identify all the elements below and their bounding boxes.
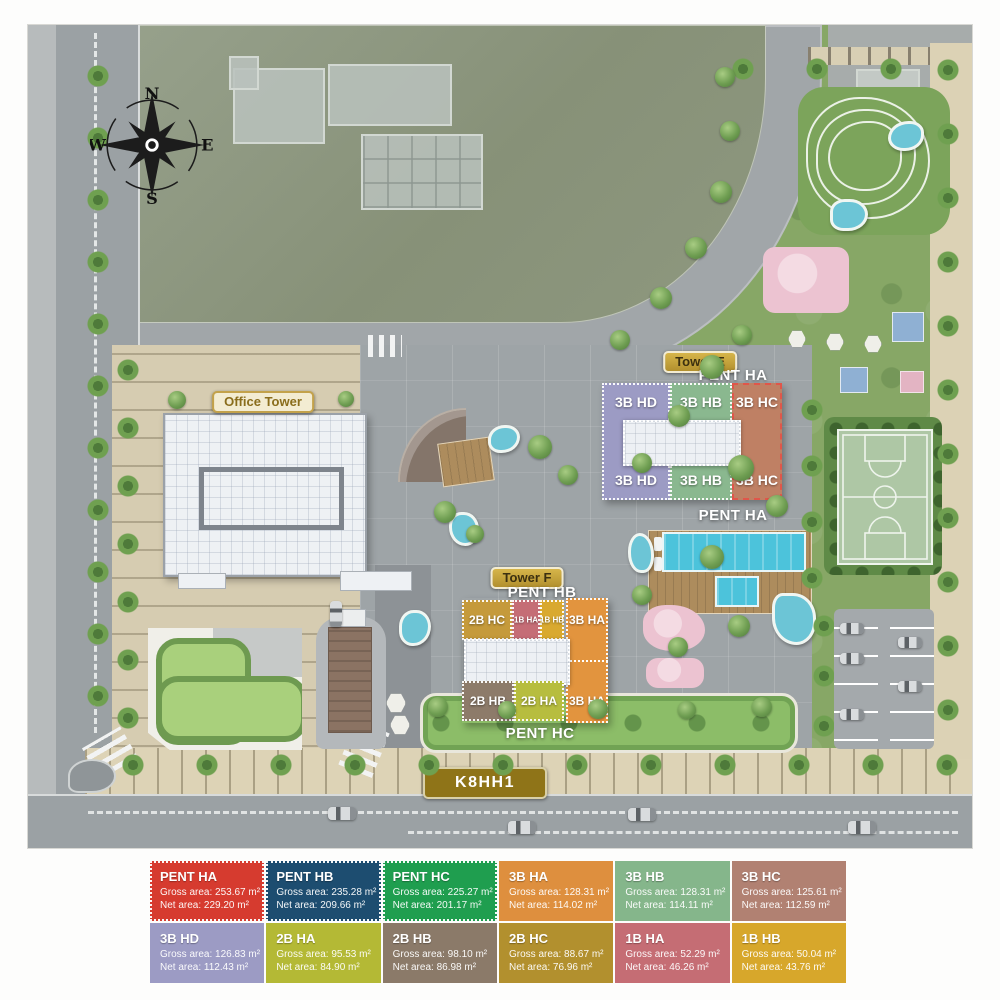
kids-pool xyxy=(715,576,759,607)
green-roof-podium xyxy=(148,628,302,750)
legend-item: 1B HB Gross area: 50.04 m² Net area: 43.… xyxy=(732,923,846,983)
tree-icon xyxy=(168,391,186,409)
legend-net: Net area: 112.43 m² xyxy=(160,961,254,974)
legend-name: 1B HB xyxy=(742,931,836,946)
unit-label: 3B HD xyxy=(615,394,657,410)
tree-row xyxy=(810,611,834,749)
tree-icon xyxy=(700,545,724,569)
unit-label: 2B HC xyxy=(469,613,505,627)
legend-net: Net area: 114.02 m² xyxy=(509,899,603,912)
compass-north: N xyxy=(145,84,160,103)
unit-label: 2B HA xyxy=(521,694,557,708)
tree-icon xyxy=(710,181,732,203)
sport-mat xyxy=(900,371,924,393)
tree-icon xyxy=(632,585,652,605)
office-tower-core xyxy=(199,467,344,530)
tree-icon xyxy=(685,237,707,259)
playground xyxy=(763,247,849,313)
tower-f-core xyxy=(464,639,570,685)
tree-icon xyxy=(338,391,354,407)
tree-icon xyxy=(558,465,578,485)
legend-item: 3B HD Gross area: 126.83 m² Net area: 11… xyxy=(150,923,264,983)
tree-row xyxy=(728,55,928,83)
basketball-court xyxy=(837,429,933,565)
legend-net: Net area: 84.90 m² xyxy=(276,961,370,974)
tree-row xyxy=(798,395,824,595)
car-icon xyxy=(508,821,536,834)
legend-gross: Gross area: 95.53 m² xyxy=(276,948,370,961)
unit-divider xyxy=(566,660,608,662)
tree-icon xyxy=(732,325,752,345)
legend-gross: Gross area: 126.83 m² xyxy=(160,948,254,961)
court-markings xyxy=(839,431,931,563)
tree-icon xyxy=(715,67,735,87)
legend-net: Net area: 229.20 m² xyxy=(160,899,254,912)
tree-icon xyxy=(588,699,608,719)
swimming-pool xyxy=(662,532,806,572)
compass-west: W xyxy=(90,136,107,155)
tree-icon xyxy=(528,435,552,459)
legend-name: 3B HD xyxy=(160,931,254,946)
unit-label: 3B HD xyxy=(615,472,657,488)
legend-net: Net area: 209.66 m² xyxy=(276,899,370,912)
tree-icon xyxy=(428,697,448,717)
tree-icon xyxy=(650,287,672,309)
legend-item: 2B HA Gross area: 95.53 m² Net area: 84.… xyxy=(266,923,380,983)
legend-gross: Gross area: 125.61 m² xyxy=(742,886,836,899)
legend-gross: Gross area: 52.29 m² xyxy=(625,948,719,961)
car-icon xyxy=(840,623,864,634)
legend-gross: Gross area: 98.10 m² xyxy=(393,948,487,961)
court-hedge xyxy=(824,417,942,575)
legend-name: 3B HB xyxy=(625,869,719,884)
car-icon xyxy=(840,709,864,720)
tree-row xyxy=(118,751,958,781)
game-court xyxy=(646,658,704,688)
pent-label: PENT HA xyxy=(699,507,768,524)
unit-label: 1B HA xyxy=(514,616,538,625)
roof-lawn xyxy=(156,676,307,742)
legend-net: Net area: 112.59 m² xyxy=(742,899,836,912)
tree-icon xyxy=(632,453,652,473)
dropoff-roof xyxy=(328,627,372,733)
entrance-canopy xyxy=(340,571,412,591)
legend-name: 2B HC xyxy=(509,931,603,946)
tree-icon xyxy=(610,330,630,350)
building-footprint xyxy=(328,64,452,126)
legend-gross: Gross area: 88.67 m² xyxy=(509,948,603,961)
sport-mat xyxy=(892,312,924,342)
wood-deck xyxy=(437,437,495,488)
tree-icon xyxy=(728,615,750,637)
building-footprint xyxy=(361,134,483,210)
parking-stalls xyxy=(834,617,878,741)
legend-gross: Gross area: 128.31 m² xyxy=(509,886,603,899)
left-sidewalk xyxy=(28,25,56,794)
tree-icon xyxy=(728,455,754,481)
building-footprint xyxy=(229,56,259,90)
compass-rose: N S W E xyxy=(90,83,214,207)
tree-row xyxy=(934,55,968,745)
legend: PENT HA Gross area: 253.67 m² Net area: … xyxy=(150,861,846,983)
tree-row xyxy=(114,355,144,741)
legend-name: 1B HA xyxy=(625,931,719,946)
legend-name: 2B HB xyxy=(393,931,487,946)
car-icon xyxy=(628,808,656,821)
car-icon xyxy=(898,637,922,648)
lounger xyxy=(654,537,662,551)
legend-item: 2B HC Gross area: 88.67 m² Net area: 76.… xyxy=(499,923,613,983)
parking-lot xyxy=(834,609,934,749)
legend-gross: Gross area: 50.04 m² xyxy=(742,948,836,961)
car-icon xyxy=(330,601,342,627)
legend-gross: Gross area: 253.67 m² xyxy=(160,886,254,899)
legend-name: 3B HC xyxy=(742,869,836,884)
crosswalk xyxy=(368,335,402,357)
legend-name: PENT HB xyxy=(276,869,370,884)
legend-name: PENT HA xyxy=(160,869,254,884)
legend-name: PENT HC xyxy=(393,869,487,884)
compass-east: E xyxy=(201,136,213,155)
legend-net: Net area: 86.98 m² xyxy=(393,961,487,974)
tree-icon xyxy=(752,697,772,717)
tree-icon xyxy=(434,501,456,523)
terraced-garden xyxy=(798,87,950,235)
tree-icon xyxy=(766,495,788,517)
legend-item: 3B HA Gross area: 128.31 m² Net area: 11… xyxy=(499,861,613,921)
tree-icon xyxy=(668,637,688,657)
legend-gross: Gross area: 128.31 m² xyxy=(625,886,719,899)
legend-item: PENT HA Gross area: 253.67 m² Net area: … xyxy=(150,861,264,921)
tree-icon xyxy=(678,701,696,719)
car-icon xyxy=(328,807,356,820)
sport-mat xyxy=(840,367,868,393)
pond xyxy=(628,533,654,573)
unit-label: 1B HB xyxy=(540,616,564,625)
car-icon xyxy=(898,681,922,692)
traffic-island xyxy=(68,759,116,793)
tower-f-building: 2B HC 1B HA 1B HB 3B HA 3B HA 2B HB 2B H… xyxy=(462,598,608,723)
site-plan-map: Office Tower Tower E PENT HA 3B HD 3B HB… xyxy=(28,25,972,848)
office-tower-building xyxy=(163,413,367,577)
unit-label: 3B HC xyxy=(736,394,778,410)
parking-stalls xyxy=(890,617,934,741)
legend-net: Net area: 46.26 m² xyxy=(625,961,719,974)
tree-icon xyxy=(498,701,516,719)
tree-icon xyxy=(466,525,484,543)
legend-name: 2B HA xyxy=(276,931,370,946)
tree-icon xyxy=(668,405,690,427)
pond xyxy=(830,199,868,231)
compass-south: S xyxy=(146,189,158,207)
unit-label: 3B HB xyxy=(680,472,722,488)
legend-item: 3B HB Gross area: 128.31 m² Net area: 11… xyxy=(615,861,729,921)
pent-label: PENT HC xyxy=(506,725,575,742)
legend-net: Net area: 201.17 m² xyxy=(393,899,487,912)
legend-item: PENT HC Gross area: 225.27 m² Net area: … xyxy=(383,861,497,921)
entrance-canopy xyxy=(178,573,226,589)
legend-name: 3B HA xyxy=(509,869,603,884)
legend-item: 1B HA Gross area: 52.29 m² Net area: 46.… xyxy=(615,923,729,983)
legend-item: 3B HC Gross area: 125.61 m² Net area: 11… xyxy=(732,861,846,921)
legend-net: Net area: 114.11 m² xyxy=(625,899,719,912)
office-tower-badge: Office Tower xyxy=(212,391,314,413)
legend-item: PENT HB Gross area: 235.28 m² Net area: … xyxy=(266,861,380,921)
legend-gross: Gross area: 235.28 m² xyxy=(276,886,370,899)
lane-line xyxy=(88,811,958,814)
lounger xyxy=(654,557,662,571)
legend-net: Net area: 76.96 m² xyxy=(509,961,603,974)
tree-icon xyxy=(700,355,724,379)
car-icon xyxy=(840,653,864,664)
tree-icon xyxy=(720,121,740,141)
unit-label: 3B HA xyxy=(569,613,605,627)
tower-e-building: 3B HD 3B HB 3B HC 3B HD 3B HB 3B HC xyxy=(602,383,782,500)
bottom-road xyxy=(28,794,972,848)
legend-net: Net area: 43.76 m² xyxy=(742,961,836,974)
legend-item: 2B HB Gross area: 98.10 m² Net area: 86.… xyxy=(383,923,497,983)
legend-gross: Gross area: 225.27 m² xyxy=(393,886,487,899)
car-icon xyxy=(848,821,876,834)
